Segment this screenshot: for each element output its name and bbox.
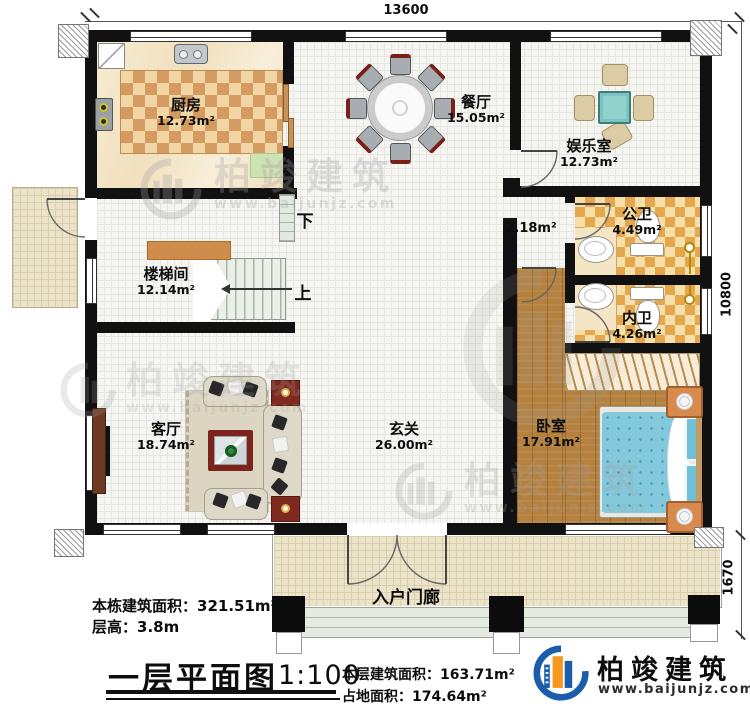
- room-label-dining: 餐厅 15.05m²: [447, 94, 505, 125]
- room-label-stair-hall: 楼梯间 12.14m²: [137, 266, 195, 297]
- tv: [106, 426, 110, 476]
- room-label-living: 客厅 18.74m²: [137, 421, 195, 452]
- game-table: [598, 91, 631, 124]
- game-chair: [602, 64, 628, 86]
- plant: [225, 445, 237, 457]
- brand-logo-icon: [533, 645, 589, 701]
- table-lamp: [281, 504, 290, 513]
- sink-basin: [179, 50, 188, 59]
- burner: [99, 103, 108, 112]
- watermark: 柏竣建筑 www.baijunjz.com: [395, 462, 579, 520]
- room-label-private-bath: 内卫 4.26m²: [612, 310, 661, 341]
- bathroom-sink: [578, 236, 614, 263]
- column-base: [276, 632, 302, 654]
- game-chair: [574, 95, 595, 121]
- watermark-logo-icon: [462, 268, 622, 428]
- corner-column: [54, 529, 84, 557]
- column-base: [690, 624, 718, 642]
- floor-plan-canvas: 13600 10800 1670: [0, 0, 750, 713]
- stairs-up-arrow: [228, 288, 292, 290]
- room-label-kitchen: 厨房 12.73m²: [157, 97, 215, 128]
- floor-height-note: 层高：3.8m: [92, 616, 179, 637]
- room-label-foyer: 玄关 26.00m²: [375, 421, 433, 452]
- room-label-entertainment: 娱乐室 12.73m²: [560, 138, 618, 169]
- corner-column: [694, 527, 724, 548]
- room-label-public-bath: 公卫 4.49m²: [612, 206, 661, 237]
- game-chair: [633, 95, 654, 121]
- watermark: 柏竣建筑 www.baijunjz.com: [60, 362, 244, 419]
- dining-chair: [346, 98, 367, 119]
- toilet-tank: [630, 287, 664, 300]
- porch-column: [489, 596, 524, 632]
- watermark-logo-icon: [140, 158, 202, 220]
- floor-area-note: 本层建筑面积：163.71m²: [342, 664, 515, 684]
- kitchen-sink: [174, 44, 208, 64]
- shower-rod: [689, 252, 691, 274]
- fridge: [98, 43, 125, 69]
- room-label-bedroom: 卧室 17.91m²: [522, 418, 580, 449]
- headboard: [696, 409, 702, 515]
- title-underline-thin: [106, 698, 340, 700]
- watermark-logo-icon: [60, 362, 116, 418]
- title-underline: [106, 690, 336, 694]
- corner-column: [690, 20, 722, 56]
- stove: [95, 98, 113, 131]
- building-area-note: 本栋建筑面积：321.51m²: [92, 595, 277, 616]
- corner-column: [58, 24, 89, 58]
- toilet-tank: [630, 243, 664, 256]
- sofa-cushion: [272, 436, 289, 453]
- sink-basin: [584, 241, 606, 256]
- shower-head: [684, 242, 695, 253]
- side-table: [271, 496, 300, 522]
- watermark-logo-icon: [395, 462, 453, 520]
- dining-chair: [390, 54, 411, 75]
- tv-cabinet: [92, 408, 106, 494]
- shower-head: [684, 294, 695, 305]
- nightstand-knob: [676, 508, 693, 525]
- sink-basin: [193, 50, 202, 59]
- nightstand-knob: [676, 393, 693, 410]
- porch-column: [688, 595, 720, 624]
- hall-cabinet: [147, 241, 231, 260]
- corridor-area-label: 2.18m²: [505, 221, 556, 236]
- nightstand: [666, 386, 703, 418]
- porch-label: 入户门廊: [372, 583, 440, 608]
- stairs-down-label: 下: [297, 207, 314, 232]
- stairs-up-label: 上: [295, 279, 312, 304]
- footprint-note: 占地面积：174.64m²: [342, 686, 487, 706]
- column-base: [493, 632, 520, 654]
- burner: [99, 117, 108, 126]
- dining-table-center: [392, 100, 408, 116]
- stairs-up-arrowhead: [221, 284, 230, 294]
- brand-website: www.baijunjz.com: [598, 682, 750, 697]
- watermark: [462, 268, 622, 432]
